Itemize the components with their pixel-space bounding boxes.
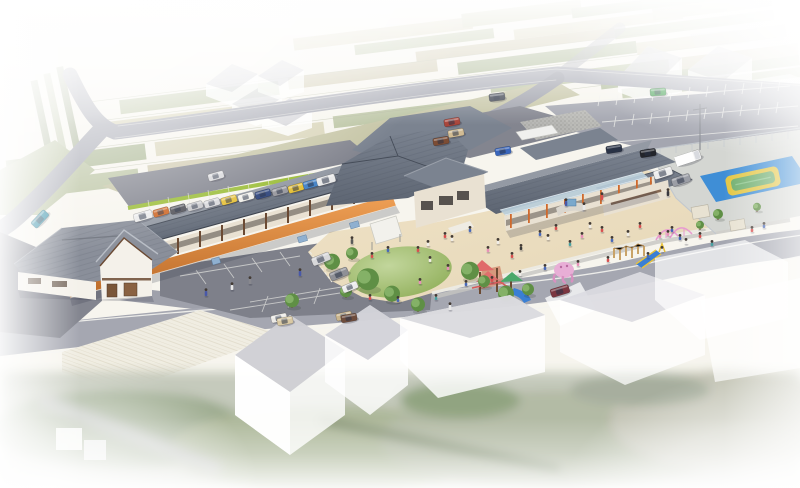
scene-canvas (0, 0, 800, 488)
storage-shed (691, 205, 710, 220)
annex-door (124, 283, 137, 296)
annex-door (107, 284, 117, 297)
entrance-sign (566, 199, 576, 206)
architectural-rendering (0, 0, 800, 488)
storage-shed (729, 219, 746, 231)
